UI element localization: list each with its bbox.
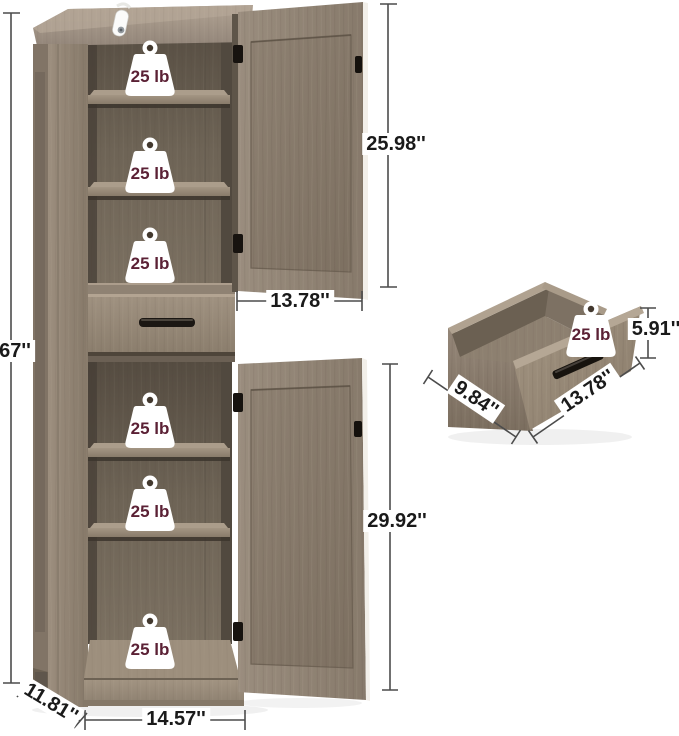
cabinet-drawer: [88, 294, 235, 362]
cabinet: [33, 2, 370, 707]
weight-capacity-label: 25 lb: [117, 503, 183, 521]
weight-capacity-label: 25 lb: [117, 255, 183, 273]
cabinet-illustration: [0, 0, 679, 736]
door-knob: [354, 421, 362, 437]
weight-capacity-label: 25 lb: [558, 326, 624, 344]
door-knob: [355, 56, 362, 73]
dim-lower-door-height: 29.92'': [363, 510, 431, 532]
door-hinge: [233, 622, 243, 641]
dim-overall-height: 67'': [0, 340, 35, 362]
dim-top-section-width: 13.78'': [266, 290, 334, 312]
lower-door: [233, 358, 370, 701]
dim-drawer-height: 5.91'': [628, 318, 679, 340]
weight-capacity-label: 25 lb: [117, 68, 183, 86]
left-side-panel: [33, 44, 88, 707]
drawer-handle-highlight: [141, 319, 193, 321]
weight-capacity-label: 25 lb: [117, 420, 183, 438]
weight-capacity-label: 25 lb: [117, 641, 183, 659]
door-hinge: [233, 393, 243, 412]
weight-capacity-label: 25 lb: [117, 165, 183, 183]
dim-upper-door-height: 25.98'': [362, 133, 430, 155]
door-hinge: [233, 234, 243, 253]
top-panel: [33, 5, 253, 46]
upper-door: [233, 2, 368, 300]
door-hinge: [233, 45, 243, 63]
product-dimension-diagram: 67'' 25.98'' 13.78'' 29.92'' 11.81'' 14.…: [0, 0, 679, 736]
base-rail: [84, 678, 244, 706]
dim-base-width: 14.57'': [142, 708, 210, 730]
